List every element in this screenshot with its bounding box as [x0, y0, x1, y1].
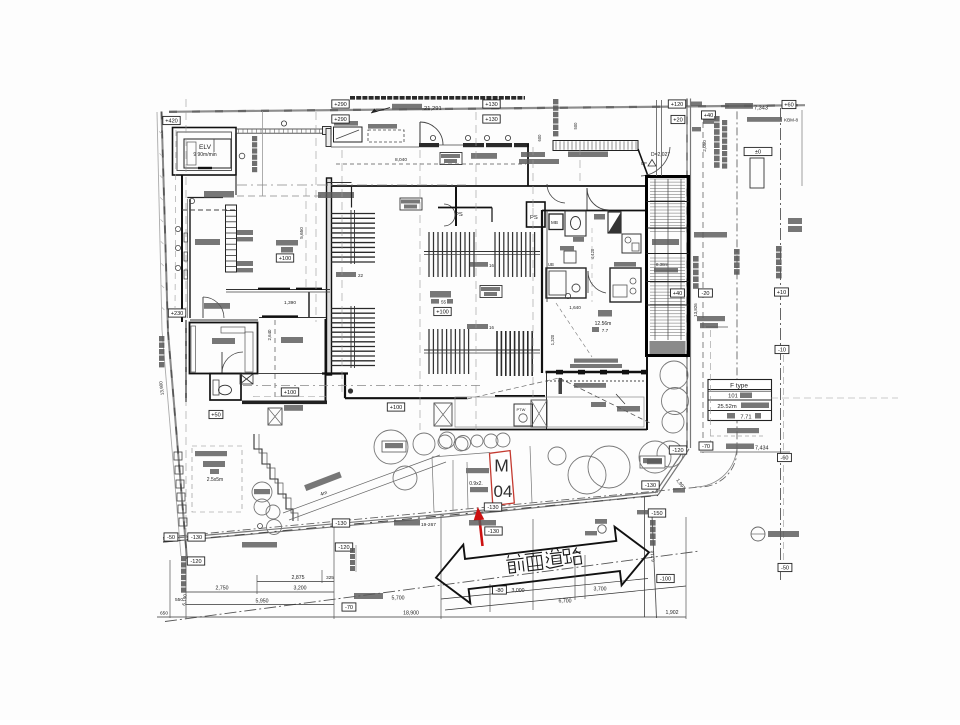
- svg-text:-130: -130: [487, 505, 498, 511]
- svg-text:600: 600: [537, 134, 542, 142]
- svg-text:+420: +420: [165, 119, 178, 125]
- svg-text:3,700: 3,700: [594, 587, 607, 593]
- svg-text:1,902: 1,902: [666, 610, 679, 616]
- svg-text:-70: -70: [702, 444, 710, 450]
- svg-text:12.56m: 12.56m: [595, 321, 612, 327]
- svg-text:+100: +100: [436, 310, 449, 316]
- svg-text:PS: PS: [530, 215, 538, 221]
- svg-text:-60: -60: [780, 456, 788, 462]
- svg-text:+40: +40: [673, 291, 683, 297]
- svg-text:F type: F type: [730, 383, 748, 390]
- svg-text:3,200: 3,200: [294, 586, 307, 592]
- svg-text:M: M: [494, 456, 509, 476]
- svg-text:21,291: 21,291: [424, 106, 442, 112]
- svg-text:-50: -50: [781, 566, 789, 572]
- svg-text:650: 650: [160, 611, 168, 617]
- svg-text:5,700: 5,700: [392, 596, 405, 602]
- svg-text:+60: +60: [784, 103, 794, 109]
- svg-text:25.52m: 25.52m: [717, 404, 737, 410]
- svg-text:4,420: 4,420: [590, 248, 595, 259]
- svg-text:19-267: 19-267: [421, 522, 436, 528]
- svg-text:-130: -130: [335, 521, 346, 527]
- svg-text:UB: UB: [548, 262, 554, 267]
- svg-text:ELV: ELV: [199, 144, 212, 151]
- svg-text:3,000: 3,000: [512, 588, 525, 594]
- svg-text:7,343: 7,343: [754, 106, 768, 112]
- svg-text:+100: +100: [390, 405, 403, 411]
- svg-text:PTW: PTW: [517, 407, 526, 412]
- svg-text:1,390: 1,390: [284, 300, 296, 306]
- svg-text:9 90m/min: 9 90m/min: [193, 152, 217, 158]
- svg-text:5,950: 5,950: [256, 599, 269, 605]
- svg-text:16: 16: [489, 263, 494, 268]
- svg-text:101: 101: [728, 394, 738, 400]
- svg-text:+120: +120: [671, 102, 684, 108]
- svg-text:+130: +130: [485, 102, 498, 108]
- svg-text:5,650: 5,650: [299, 227, 304, 239]
- svg-text:+100: +100: [279, 256, 292, 262]
- svg-text:+50: +50: [211, 413, 221, 419]
- svg-text:55: 55: [441, 300, 447, 305]
- svg-text:+130: +130: [485, 117, 498, 123]
- svg-text:13,826: 13,826: [693, 303, 698, 317]
- svg-text:0.9x2.: 0.9x2.: [469, 481, 483, 487]
- svg-text:-80: -80: [495, 588, 503, 594]
- svg-text:2,640: 2,640: [267, 329, 272, 341]
- svg-text:7.71: 7.71: [740, 414, 751, 420]
- svg-text:+290: +290: [334, 102, 347, 108]
- svg-text:2,050: 2,050: [702, 140, 707, 152]
- svg-text:-130: -130: [191, 535, 202, 541]
- svg-text:1,320: 1,320: [550, 334, 555, 345]
- svg-text:2,750: 2,750: [216, 586, 229, 592]
- svg-text:MB: MB: [551, 220, 558, 225]
- svg-text:7.7: 7.7: [602, 328, 609, 333]
- svg-text:+40: +40: [704, 113, 714, 119]
- svg-text:8.38m: 8.38m: [656, 262, 669, 267]
- svg-text:-50: -50: [167, 535, 175, 541]
- svg-text:-20: -20: [701, 291, 709, 297]
- svg-text:UP: UP: [641, 161, 647, 166]
- svg-text:-10: -10: [778, 348, 786, 354]
- svg-text:22: 22: [358, 273, 364, 278]
- svg-text:-120: -120: [672, 448, 683, 454]
- svg-text:7,434: 7,434: [755, 446, 769, 452]
- svg-text:6,700: 6,700: [559, 599, 572, 605]
- svg-text:-130: -130: [645, 483, 656, 489]
- svg-text:+10: +10: [777, 290, 787, 296]
- svg-text:16: 16: [489, 325, 494, 330]
- svg-text:-150: -150: [651, 511, 662, 517]
- svg-text:2.5x5m: 2.5x5m: [207, 477, 223, 483]
- svg-text:±0: ±0: [755, 150, 761, 156]
- svg-text:-120: -120: [338, 545, 349, 551]
- svg-text:8,040: 8,040: [395, 157, 407, 163]
- svg-text:+100: +100: [284, 390, 297, 396]
- svg-text:-130: -130: [488, 529, 499, 535]
- svg-text:325: 325: [326, 575, 334, 580]
- svg-text:500: 500: [573, 122, 578, 130]
- svg-text:-120: -120: [190, 559, 201, 565]
- svg-text:+20: +20: [673, 118, 683, 124]
- svg-text:2,875: 2,875: [292, 575, 305, 581]
- svg-text:KBM-8: KBM-8: [784, 118, 798, 123]
- svg-text:1,640: 1,640: [569, 305, 581, 310]
- svg-text:18,900: 18,900: [403, 611, 419, 617]
- svg-text:+230: +230: [171, 311, 184, 317]
- svg-text:PS: PS: [455, 212, 463, 218]
- svg-text:+290: +290: [334, 117, 347, 123]
- svg-text:D=2,027: D=2,027: [651, 152, 670, 158]
- svg-text:-70: -70: [345, 605, 353, 611]
- svg-text:-100: -100: [660, 577, 671, 583]
- svg-text:04: 04: [494, 482, 513, 501]
